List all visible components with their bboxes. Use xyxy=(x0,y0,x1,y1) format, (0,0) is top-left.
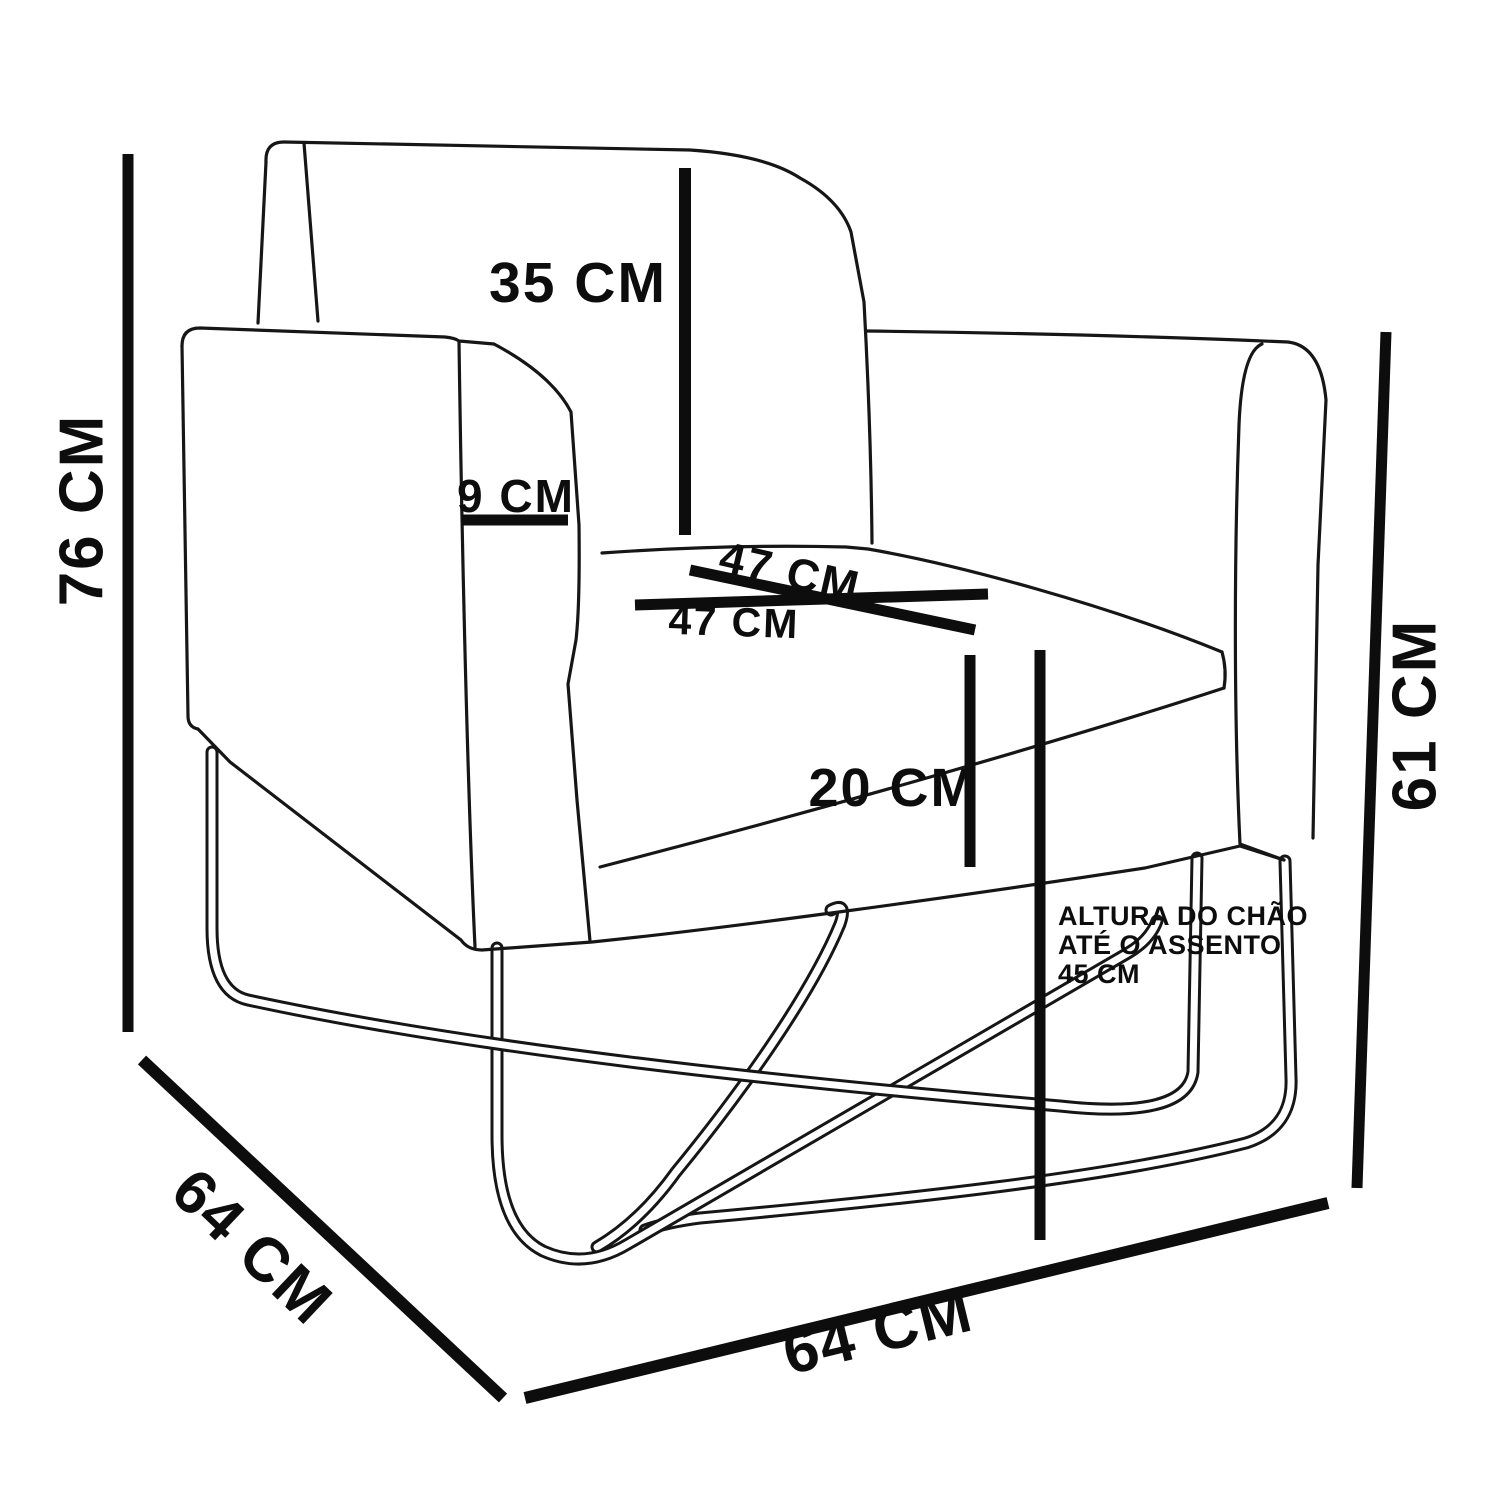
backrest-left-edge xyxy=(258,162,266,323)
label-total-height: 76 CM xyxy=(48,414,117,607)
label-depth: 64 CM xyxy=(158,1156,345,1339)
label-floor-note-line3: 45 CM xyxy=(1058,959,1140,989)
label-seat-width-lower: 47 CM xyxy=(668,597,800,648)
body-bottom-edge xyxy=(182,346,1284,950)
label-arm-width: 9 CM xyxy=(457,470,575,522)
label-floor-note-line1: ALTURA DO CHÃO xyxy=(1058,900,1308,931)
diagram-canvas: 76 CM 64 CM 64 CM 61 CM 35 CM 9 CM 47 CM… xyxy=(0,0,1500,1500)
label-cushion-thickness: 20 CM xyxy=(808,758,977,818)
seat-cushion-right-edge xyxy=(1222,652,1225,688)
label-floor-note-line2: ATÉ O ASSENTO xyxy=(1058,929,1282,960)
label-arm-height: 61 CM xyxy=(1381,619,1450,812)
backrest-side-seam xyxy=(304,143,318,321)
left-armrest-outline xyxy=(182,328,590,941)
label-width: 64 CM xyxy=(776,1276,979,1389)
label-floor-to-seat-note: ALTURA DO CHÃO ATÉ O ASSENTO 45 CM xyxy=(1058,900,1308,989)
label-backrest-height: 35 CM xyxy=(489,251,667,315)
armchair-dimension-drawing: 76 CM 64 CM 64 CM 61 CM 35 CM 9 CM 47 CM… xyxy=(0,0,1500,1500)
right-armrest-inner-edge xyxy=(1235,344,1284,860)
left-armrest-front-seam xyxy=(459,341,475,947)
